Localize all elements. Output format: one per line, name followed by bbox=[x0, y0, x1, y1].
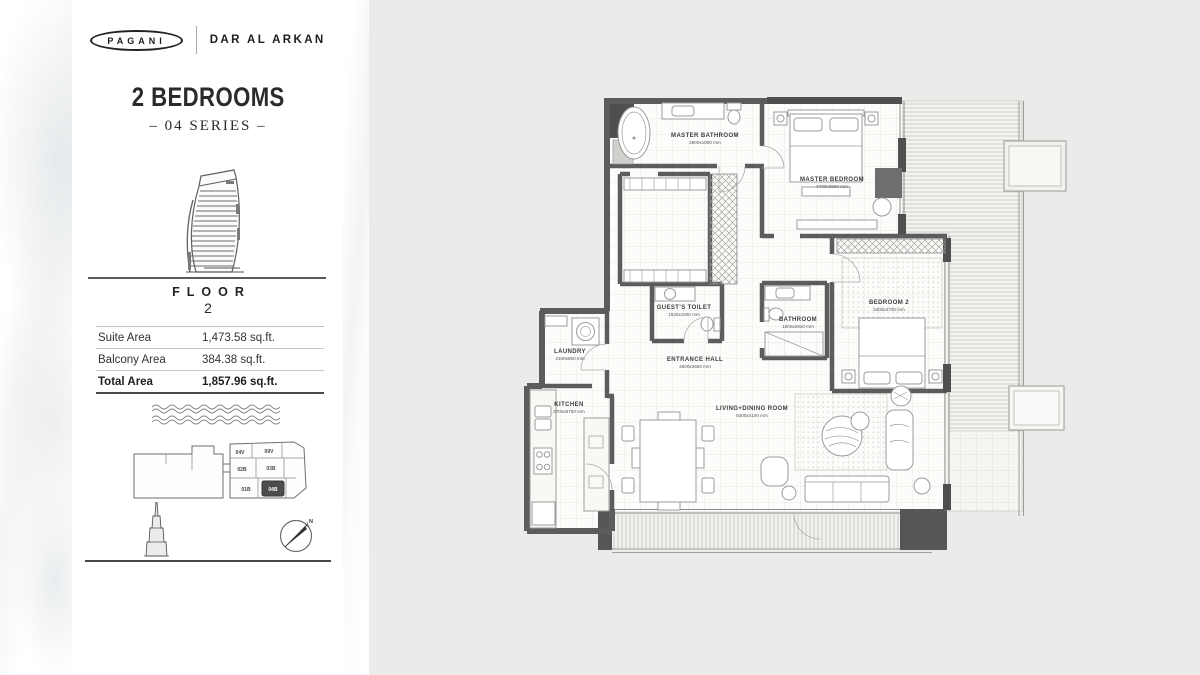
tower-ground-line bbox=[88, 277, 326, 279]
page-title: 2 BEDROOMS bbox=[85, 82, 331, 113]
bottom-balcony bbox=[598, 509, 947, 553]
stove bbox=[534, 448, 552, 474]
svg-text:3900x1800 mm: 3900x1800 mm bbox=[689, 140, 721, 145]
suite-area-label: Suite Area bbox=[98, 332, 202, 344]
svg-text:KITCHEN: KITCHEN bbox=[554, 402, 583, 408]
dar-al-arkan-logo: DAR AL ARKAN bbox=[210, 34, 326, 46]
compass-north-label: N bbox=[309, 519, 313, 525]
marble-texture-divider bbox=[343, 0, 369, 675]
toilet bbox=[714, 318, 720, 331]
suite-area-value: 1,473.58 sq.ft. bbox=[202, 332, 322, 344]
nightstand bbox=[774, 112, 787, 125]
svg-text:LIVING+DINING ROOM: LIVING+DINING ROOM bbox=[716, 406, 788, 412]
nightstand bbox=[865, 112, 878, 125]
brand-divider bbox=[196, 26, 197, 54]
svg-text:9200x4100 mm: 9200x4100 mm bbox=[736, 413, 768, 418]
side-table bbox=[851, 412, 869, 430]
nightstand bbox=[929, 370, 942, 383]
table-row-total: Total Area 1,857.96 sq.ft. bbox=[96, 371, 324, 394]
toilet bbox=[764, 308, 769, 321]
table-row-suite: Suite Area 1,473.58 sq.ft. bbox=[96, 327, 324, 349]
tv-console bbox=[797, 220, 877, 229]
total-area-value: 1,857.96 sq.ft. bbox=[202, 376, 322, 388]
terrace-planter bbox=[1004, 141, 1066, 191]
fridge bbox=[532, 502, 555, 525]
wardrobe bbox=[624, 178, 706, 190]
wardrobe bbox=[624, 270, 706, 282]
tower-illustration bbox=[152, 164, 268, 278]
wave-pattern-icon bbox=[150, 402, 284, 428]
area-table: Suite Area 1,473.58 sq.ft. Balcony Area … bbox=[96, 326, 324, 394]
key-plan-unit: 02B bbox=[237, 467, 247, 473]
dining-table bbox=[640, 420, 696, 502]
kitchen-island bbox=[584, 418, 609, 511]
armchair bbox=[873, 198, 891, 216]
key-plan-unit: 04V bbox=[236, 450, 246, 456]
svg-text:GUEST'S TOILET: GUEST'S TOILET bbox=[657, 305, 712, 311]
key-plan-unit: 01B bbox=[241, 487, 251, 493]
sidebar-bottom-rule bbox=[85, 560, 331, 562]
floorplan-brochure-page: PAGANI DAR AL ARKAN 2 BEDROOMS – 04 SERI… bbox=[0, 0, 1200, 675]
armchair bbox=[761, 457, 788, 486]
svg-text:1530x1500 mm: 1530x1500 mm bbox=[668, 312, 700, 317]
laundry-counter bbox=[545, 316, 567, 326]
chair bbox=[702, 478, 714, 493]
svg-text:3400x4700 mm: 3400x4700 mm bbox=[873, 307, 905, 312]
burj-khalifa-icon bbox=[136, 502, 178, 560]
nightstand bbox=[842, 370, 855, 383]
marble-texture-left bbox=[0, 0, 72, 675]
chair bbox=[622, 426, 634, 441]
svg-text:1800x2910 mm: 1800x2910 mm bbox=[782, 324, 814, 329]
svg-text:MASTER BEDROOM: MASTER BEDROOM bbox=[800, 177, 864, 183]
total-area-label: Total Area bbox=[98, 376, 202, 388]
svg-text:BEDROOM 2: BEDROOM 2 bbox=[869, 300, 909, 306]
chair bbox=[702, 426, 714, 441]
pagani-logo: PAGANI bbox=[90, 30, 182, 51]
svg-text:BATHROOM: BATHROOM bbox=[779, 317, 817, 323]
svg-text:ENTRANCE HALL: ENTRANCE HALL bbox=[667, 357, 723, 363]
svg-text:4600x3650 mm: 4600x3650 mm bbox=[679, 364, 711, 369]
key-plan-highlighted-label: 04B bbox=[268, 487, 278, 493]
floor-plan: MASTER BATHROOM 3900x1800 mm MASTER BEDR… bbox=[512, 86, 1077, 568]
svg-text:2700x5750 mm: 2700x5750 mm bbox=[553, 409, 585, 414]
svg-text:LAUNDRY: LAUNDRY bbox=[554, 349, 586, 355]
svg-text:2100x850 mm: 2100x850 mm bbox=[555, 356, 584, 361]
brand-row: PAGANI DAR AL ARKAN bbox=[85, 26, 331, 54]
svg-text:4700x3900 mm: 4700x3900 mm bbox=[816, 184, 848, 189]
balcony-area-value: 384.38 sq.ft. bbox=[202, 354, 322, 366]
key-plan-unit: 09V bbox=[265, 449, 275, 455]
terrace-square bbox=[1009, 386, 1064, 430]
key-plan-unit: 03B bbox=[266, 466, 276, 472]
chair bbox=[622, 478, 634, 493]
balcony-area-label: Balcony Area bbox=[98, 354, 202, 366]
sofa bbox=[805, 476, 889, 502]
stool bbox=[782, 486, 796, 500]
compass-icon: N bbox=[276, 513, 320, 557]
series-subtitle: – 04 SERIES – bbox=[85, 118, 331, 135]
svg-text:MASTER BATHROOM: MASTER BATHROOM bbox=[671, 133, 739, 139]
floor-number: 2 bbox=[85, 300, 331, 316]
table-row-balcony: Balcony Area 384.38 sq.ft. bbox=[96, 349, 324, 371]
planter bbox=[914, 478, 930, 494]
floor-label: FLOOR bbox=[85, 285, 331, 299]
bathtub bbox=[618, 107, 650, 159]
toilet bbox=[727, 103, 741, 110]
key-plan: 04V 09V 02B 03B 01B 04B bbox=[126, 434, 314, 508]
